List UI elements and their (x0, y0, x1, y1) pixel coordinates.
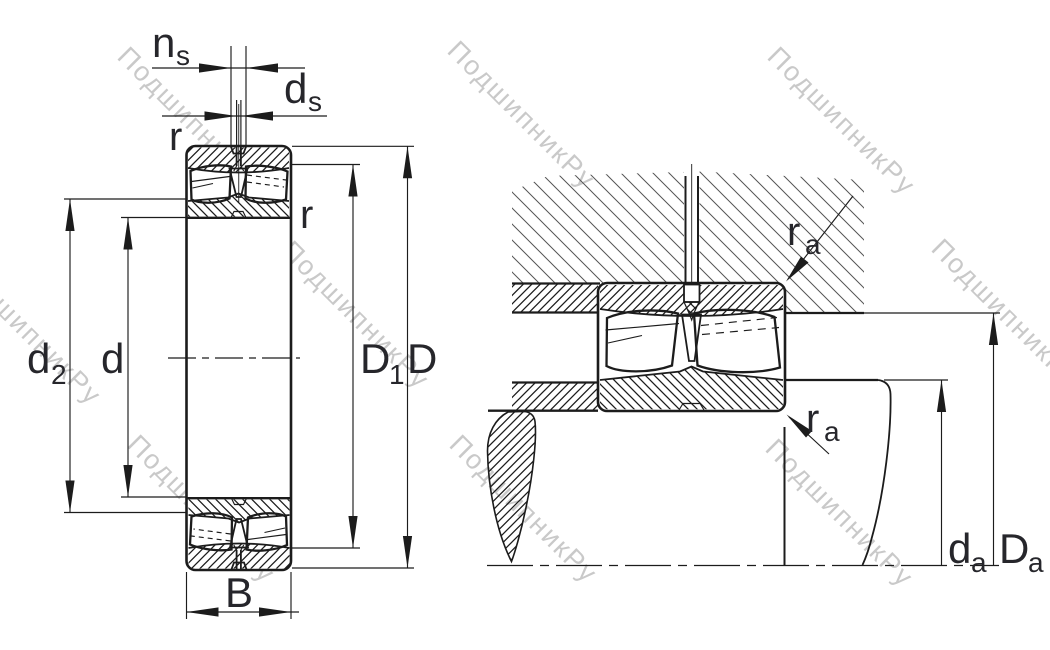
dim-label-ra-top: r (787, 210, 800, 254)
dim-label-Da-sub: a (1028, 547, 1044, 578)
left-view-bearing-section (168, 104, 300, 570)
dim-label-ra-top-sub: a (805, 229, 821, 260)
arrowhead (187, 607, 219, 616)
dim-label-d2-sub: 2 (51, 359, 67, 390)
lubrication-hole-section (684, 285, 700, 303)
right-view-mounting-section (487, 164, 999, 566)
dim-da: d a (884, 380, 987, 578)
arrowhead (65, 481, 74, 513)
arrowhead (123, 465, 132, 497)
dim-B: B (187, 569, 300, 619)
arrowhead (259, 607, 291, 616)
arrowhead (123, 218, 132, 250)
arrowhead (246, 63, 278, 72)
dim-label-D1-sub: 1 (389, 359, 405, 390)
dim-label-ds-sub: s (308, 86, 322, 117)
dim-label-r-right: r (300, 193, 313, 237)
watermark: ПодшипникРу (442, 35, 602, 195)
arrowhead (403, 146, 412, 178)
dim-label-d2: d (27, 335, 50, 382)
arrowhead (348, 165, 357, 197)
housing-shoulder-hatch (512, 285, 598, 312)
bearing-technical-drawing: ПодшипникРу ПодшипникРу ПодшипникРу Подш… (0, 0, 1050, 650)
dim-label-da-sub: a (971, 547, 987, 578)
dim-label-ra-bottom-sub: a (824, 416, 840, 447)
dim-label-Da: D (999, 525, 1029, 572)
arrowhead (199, 63, 231, 72)
dim-label-r-left: r (169, 115, 182, 159)
dim-label-D: D (407, 335, 437, 382)
dim-label-da: d (948, 525, 971, 572)
arrowhead (205, 111, 237, 120)
arrowhead (937, 380, 946, 412)
dim-label-d: d (101, 335, 124, 382)
arrowhead (348, 516, 357, 548)
dim-label-ns-sub: s (176, 40, 190, 71)
dim-label-ns: n (152, 19, 175, 66)
dim-label-ds: d (284, 65, 307, 112)
technical-drawing-page: ПодшипникРу ПодшипникРу ПодшипникРу Подш… (0, 0, 1050, 650)
dim-label-D1: D (360, 335, 390, 382)
dim-label-B: B (225, 569, 253, 616)
shaft-breakout (488, 412, 536, 562)
shaft-shoulder-hatch (512, 383, 598, 410)
arrowhead (65, 199, 74, 231)
arrowhead (403, 536, 412, 568)
dim-label-ra-bottom: r (806, 397, 819, 441)
